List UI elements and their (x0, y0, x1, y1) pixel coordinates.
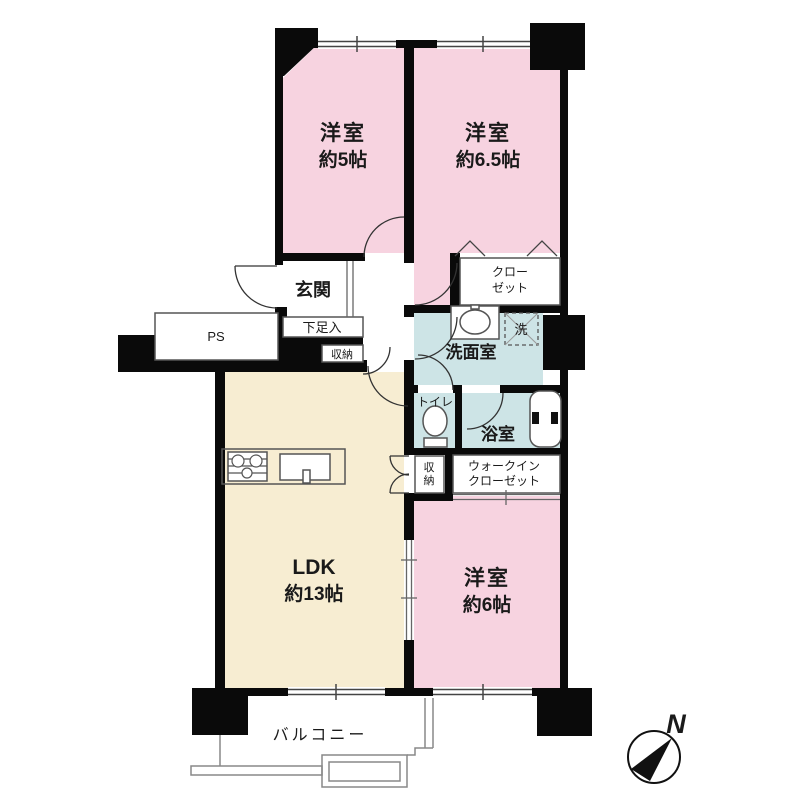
room2-size-label: 約6.5帖 (456, 148, 520, 171)
floorplan-page: N 洋室 約5帖 洋室 約6.5帖 洋室 約6帖 LDK 約13帖 玄関 下足入… (0, 0, 800, 800)
ldk-floor (225, 372, 404, 688)
wall-toilet-bath-divider (455, 393, 462, 448)
compass-north-label: N (666, 709, 686, 739)
wall-wash-bottom-c (500, 385, 568, 393)
balcony-label: バルコニー (273, 727, 368, 744)
compass-needle-icon (631, 738, 672, 781)
closet-label-line1: クロー (492, 265, 528, 279)
hall-storage-label: 収納 (331, 348, 353, 361)
wall-genkan-storage-a (283, 337, 325, 362)
wic-label-line1: ウォークイン (468, 459, 540, 473)
ldk-storage-label-line1: 収 (424, 461, 435, 474)
toilet-label: トイレ (417, 395, 453, 409)
room1-size-label: 約5帖 (319, 148, 368, 171)
washroom-sink-icon (451, 305, 499, 339)
bathtub-icon (530, 391, 561, 447)
ldk-size-label: 約13帖 (284, 582, 343, 605)
pillar-bottom-right (537, 688, 592, 736)
pillar-mid-right (543, 315, 585, 370)
entrance-door-arc (235, 266, 277, 308)
wall-bath-bottom (404, 448, 568, 455)
pillar-mid-left (118, 335, 155, 372)
closet-label-line2: ゼット (492, 281, 528, 295)
pillar-top-right (530, 23, 585, 70)
genkan-step-line (347, 261, 353, 317)
wall-storage-wic-divider (445, 455, 453, 495)
shoe-box-label: 下足入 (302, 320, 341, 335)
room3-floor (414, 496, 560, 688)
bath-label: 浴室 (481, 424, 515, 444)
ldk-storage-label-line2: 納 (424, 474, 435, 487)
wall-wash-bottom-b (453, 385, 462, 393)
floorplan-drawing: N 洋室 約5帖 洋室 約6.5帖 洋室 約6帖 LDK 約13帖 玄関 下足入… (0, 0, 800, 800)
wic-label-line2: クローゼット (468, 474, 540, 488)
room1-name-label: 洋室 (320, 121, 366, 145)
genkan-label: 玄関 (295, 279, 331, 300)
wall-genkan-top (275, 253, 365, 261)
compass: N (628, 709, 686, 783)
toilet-icon (423, 406, 447, 447)
room2-name-label: 洋室 (465, 121, 511, 145)
room3-size-label: 約6帖 (463, 593, 512, 616)
wall-right (560, 70, 568, 688)
wall-left-upper (275, 75, 283, 265)
wall-ldk-left (215, 365, 225, 688)
kitchen-faucet-icon (303, 470, 310, 483)
pillar-bottom-left (192, 688, 248, 735)
wall-wash-bottom-a (404, 385, 418, 393)
wall-center-vert-d (404, 393, 414, 455)
ldk-name-label: LDK (292, 556, 335, 579)
washroom-label: 洗面室 (446, 342, 497, 362)
wall-center-vert-a (404, 48, 414, 263)
hall-storage-door-arc (363, 347, 390, 374)
wall-wic-bottom-left (404, 493, 453, 501)
ps-label: PS (207, 329, 225, 344)
wall-center-vert-f (404, 640, 414, 688)
wall-genkan-storage-b (322, 337, 363, 345)
room3-name-label: 洋室 (464, 566, 510, 590)
laundry-label: 洗 (514, 322, 527, 337)
